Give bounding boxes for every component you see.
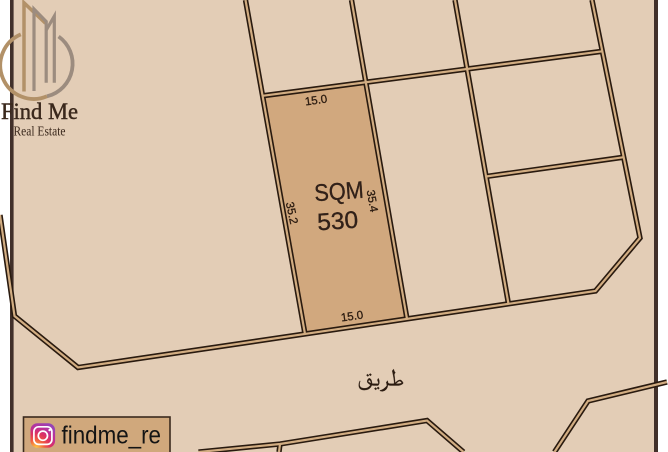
svg-text:Real Estate: Real Estate xyxy=(14,125,66,140)
svg-text:530: 530 xyxy=(316,207,359,237)
svg-text:findme_re: findme_re xyxy=(62,422,162,450)
svg-text:Find Me: Find Me xyxy=(1,99,78,125)
svg-text:SQM: SQM xyxy=(313,177,364,207)
